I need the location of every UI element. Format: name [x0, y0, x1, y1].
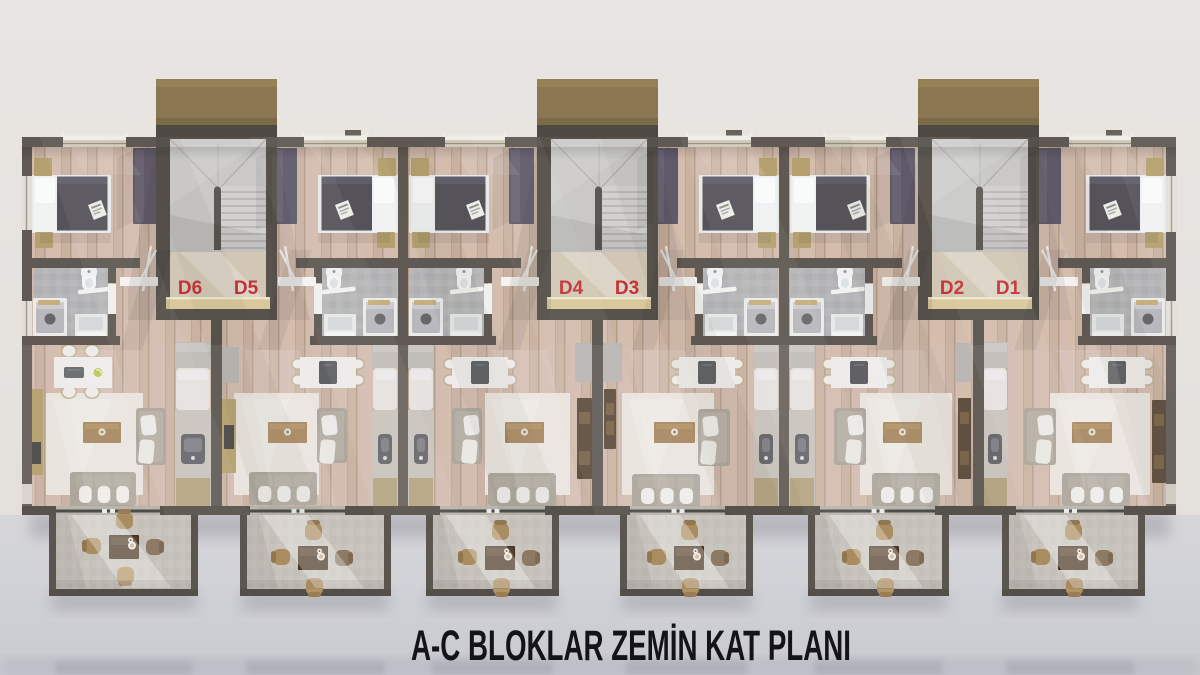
svg-text:A-C BLOKLAR ZEMİN KAT PLANI: A-C BLOKLAR ZEMİN KAT PLANI	[411, 623, 851, 670]
